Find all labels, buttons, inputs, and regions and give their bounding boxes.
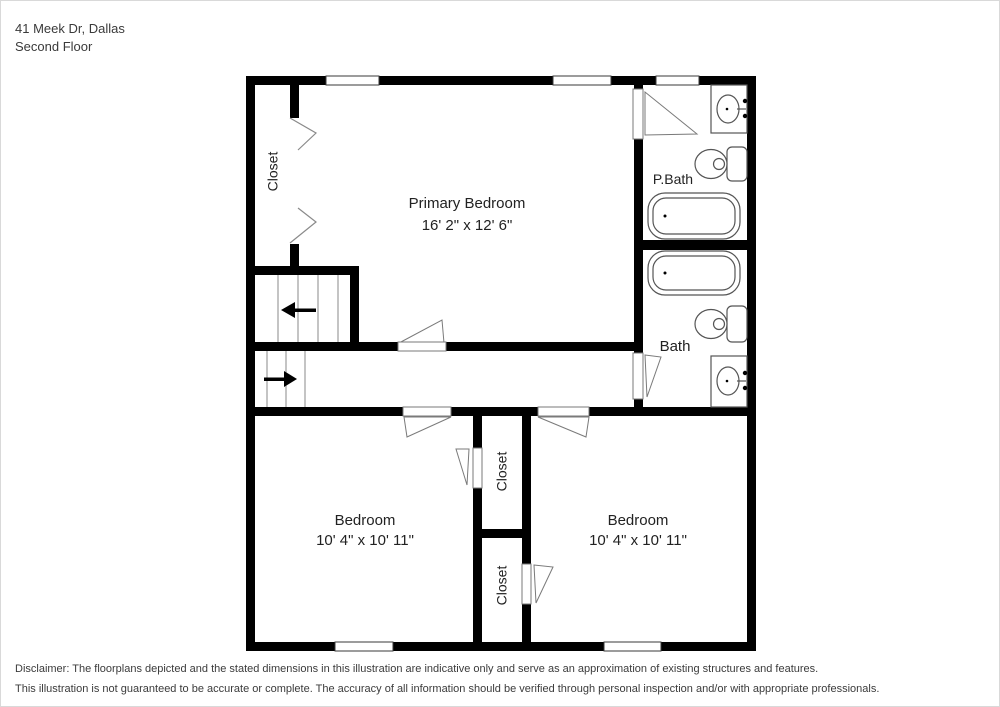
stairs [267, 275, 338, 407]
stairs-arrow-right-shaft [264, 378, 285, 382]
bedroom-left-label: Bedroom [265, 512, 465, 529]
window [553, 76, 611, 85]
sink-icon [711, 85, 747, 133]
stair-right-wall [350, 266, 359, 351]
door-swing [538, 417, 589, 437]
door-leaf [633, 353, 643, 399]
pbath-label: P.Bath [623, 171, 723, 188]
door-leaf [398, 342, 446, 351]
closet-left-label: Closet [265, 122, 282, 222]
bedrooms-top-wall-2 [451, 407, 538, 416]
door-leaf [538, 407, 589, 416]
bifold-chevron [290, 118, 316, 150]
primary-bedroom-label: Primary Bedroom [342, 195, 592, 212]
closet-mid-top-label: Closet [494, 422, 511, 522]
exterior-wall-left [246, 76, 255, 651]
stair-top-wall [246, 266, 359, 275]
toilet-icon [695, 306, 747, 342]
window [335, 642, 393, 651]
primary-bedroom-dimensions: 16' 2" x 12' 6" [342, 217, 592, 234]
door-swing [645, 355, 661, 397]
exterior-wall-right [747, 76, 756, 651]
bifold-door-icon [290, 118, 316, 243]
hallway-top-wall-right [446, 342, 643, 351]
mid-closet-left-wall-lower [473, 488, 482, 642]
stairs-arrow-right-icon [284, 371, 297, 387]
door-swing [404, 417, 451, 437]
bedroom-left-dimensions: 10' 4" x 10' 11" [265, 532, 465, 549]
door-leaf [473, 448, 482, 488]
mid-closet-right-wall-lower [522, 604, 531, 642]
door-swing [645, 92, 697, 135]
bedrooms-top-wall-1 [246, 407, 403, 416]
disclaimer-line-1: Disclaimer: The floorplans depicted and … [15, 663, 818, 676]
mid-closet-right-wall-upper [522, 416, 531, 564]
door-leaf [633, 89, 643, 139]
bifold-chevron [290, 208, 316, 243]
window [604, 642, 661, 651]
exterior-wall-bottom [246, 642, 756, 651]
disclaimer-line-2: This illustration is not guaranteed to b… [15, 683, 879, 696]
floorplan-page: 41 Meek Dr, Dallas Second Floor [0, 0, 1000, 707]
bathtub-icon [648, 193, 740, 239]
pbath-bath-divider-wall [634, 240, 756, 250]
stairs-arrow-left-icon [281, 302, 295, 318]
bath-fixtures [648, 251, 747, 407]
bath-label: Bath [625, 338, 725, 355]
sink-icon [711, 356, 747, 407]
bedroom-right-label: Bedroom [538, 512, 738, 529]
door-swing [456, 449, 469, 485]
window [326, 76, 379, 85]
closet-mid-bottom-label: Closet [494, 536, 511, 636]
window [656, 76, 699, 85]
door-swing [399, 320, 444, 343]
door-leaf [522, 564, 531, 604]
bedroom-right-dimensions: 10' 4" x 10' 11" [538, 532, 738, 549]
bedrooms-top-wall-3 [589, 407, 756, 416]
mid-closet-left-wall-upper [473, 416, 482, 448]
bathtub-icon [648, 251, 740, 295]
stairs-arrow-left-shaft [293, 309, 316, 313]
hallway-top-wall-left [246, 342, 398, 351]
closet-left-wall-upper [290, 85, 299, 118]
door-leaf [403, 407, 451, 416]
door-swing [534, 565, 553, 603]
